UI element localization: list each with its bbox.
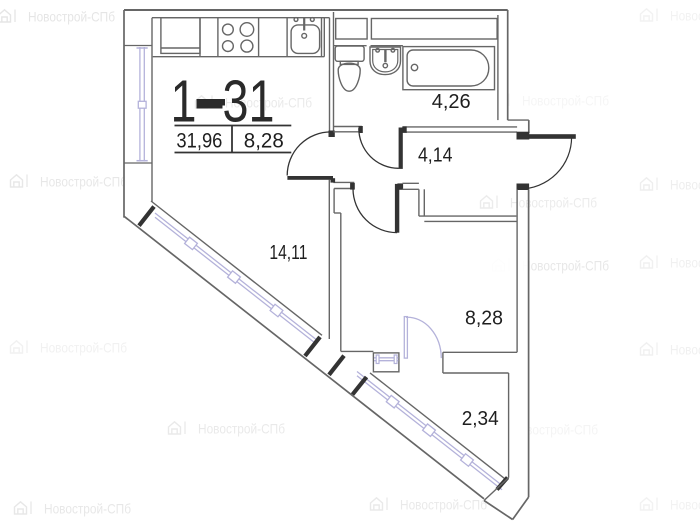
svg-text:Новострой-СПб: Новострой-СПб [28,10,115,25]
svg-text:Новострой-СПб: Новострой-СПб [670,256,700,271]
svg-text:Новострой-СПб: Новострой-СПб [400,498,487,513]
svg-text:Новострой-СПб: Новострой-СПб [522,259,609,274]
svg-text:Новострой-СПб: Новострой-СПб [198,422,285,437]
svg-text:8,28: 8,28 [465,307,503,330]
svg-text:Новострой-СПб: Новострой-СПб [670,343,700,358]
svg-text:Новострой-СПб: Новострой-СПб [670,178,700,193]
svg-text:Новострой-СПб: Новострой-СПб [44,502,131,517]
svg-text:8,28: 8,28 [244,130,284,153]
svg-text:4,26: 4,26 [432,90,471,113]
svg-text:Новострой-СПб: Новострой-СПб [40,175,127,190]
svg-text:Новострой-СПб: Новострой-СПб [510,196,597,211]
svg-text:14,11: 14,11 [269,241,307,264]
svg-text:2,34: 2,34 [462,407,499,430]
svg-text:4,14: 4,14 [418,144,453,167]
svg-text:Новострой-СПб: Новострой-СПб [670,9,700,24]
svg-text:Новострой-СПб: Новострой-СПб [40,341,127,356]
svg-text:Новострой-СПб: Новострой-СПб [670,498,700,513]
svg-text:31,96: 31,96 [176,130,222,153]
svg-text:Новострой-СПб: Новострой-СПб [522,94,609,109]
